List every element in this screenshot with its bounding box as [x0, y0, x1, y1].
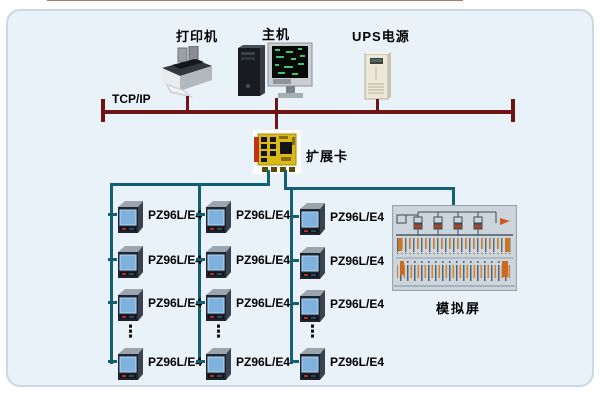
meter-device: PZ96L/E4	[204, 245, 232, 279]
distribution-line-right	[284, 187, 455, 190]
column2-ellipsis: ⋮	[210, 323, 220, 340]
meter-label: PZ96L/E4	[236, 253, 290, 267]
distribution-line-left	[110, 183, 270, 186]
top-edge-line	[47, 0, 463, 1]
ups-drop-line	[376, 99, 379, 110]
expansion-card-icon	[252, 129, 302, 175]
column3-spine-line	[290, 187, 293, 364]
meter-label: PZ96L/E4	[236, 208, 290, 222]
host-drop-line	[275, 98, 278, 110]
meter-label: PZ96L/E4	[330, 297, 384, 311]
power-meter-icon	[116, 288, 144, 322]
meter-device: PZ96L/E4	[204, 200, 232, 234]
meter-device: PZ96L/E4	[116, 347, 144, 381]
power-meter-icon	[298, 202, 326, 236]
meter-label: PZ96L/E4	[148, 253, 202, 267]
tcpip-bus-line	[103, 110, 513, 114]
meter-label: PZ96L/E4	[330, 210, 384, 224]
meter-label: PZ96L/E4	[236, 355, 290, 369]
column3-ellipsis: ⋮	[304, 323, 314, 340]
meter-label: PZ96L/E4	[330, 254, 384, 268]
meter-device: PZ96L/E4	[298, 202, 326, 236]
power-meter-icon	[204, 200, 232, 234]
meter-label: PZ96L/E4	[148, 355, 202, 369]
meter-label: PZ96L/E4	[330, 355, 384, 369]
tcpip-bus-label: TCP/IP	[112, 92, 151, 106]
mimic-panel-image	[392, 205, 517, 291]
ups-label: UPS电源	[352, 26, 410, 45]
meter-device: PZ96L/E4	[116, 200, 144, 234]
printer-label: 打印机	[176, 26, 218, 45]
bus-endcap-left	[101, 99, 105, 122]
ups-tower-icon	[362, 52, 394, 102]
system-topology-diagram: 打印机 主机 UPS电源	[0, 0, 600, 400]
printer-icon	[158, 46, 216, 102]
power-meter-icon	[204, 288, 232, 322]
expansion-card-label: 扩展卡	[306, 146, 348, 165]
column1-ellipsis: ⋮	[122, 323, 132, 340]
meter-label: PZ96L/E4	[236, 296, 290, 310]
power-meter-icon	[204, 245, 232, 279]
power-meter-icon	[116, 200, 144, 234]
host-computer-icon	[236, 42, 314, 102]
meter-device: PZ96L/E4	[204, 347, 232, 381]
host-label: 主机	[262, 24, 290, 43]
mimic-panel-label: 模拟屏	[436, 298, 481, 317]
power-meter-icon	[116, 245, 144, 279]
meter-device: PZ96L/E4	[116, 288, 144, 322]
meter-device: PZ96L/E4	[116, 245, 144, 279]
meter-device: PZ96L/E4	[298, 246, 326, 280]
meter-device: PZ96L/E4	[298, 347, 326, 381]
mimic-panel-drop-line	[452, 187, 455, 206]
meter-device: PZ96L/E4	[204, 288, 232, 322]
bus-endcap-right	[511, 99, 515, 122]
power-meter-icon	[298, 347, 326, 381]
power-meter-icon	[298, 246, 326, 280]
power-meter-icon	[204, 347, 232, 381]
printer-drop-line	[186, 96, 189, 110]
meter-label: PZ96L/E4	[148, 296, 202, 310]
meter-label: PZ96L/E4	[148, 208, 202, 222]
power-meter-icon	[298, 289, 326, 323]
meter-device: PZ96L/E4	[298, 289, 326, 323]
power-meter-icon	[116, 347, 144, 381]
column1-spine-line	[110, 183, 113, 364]
